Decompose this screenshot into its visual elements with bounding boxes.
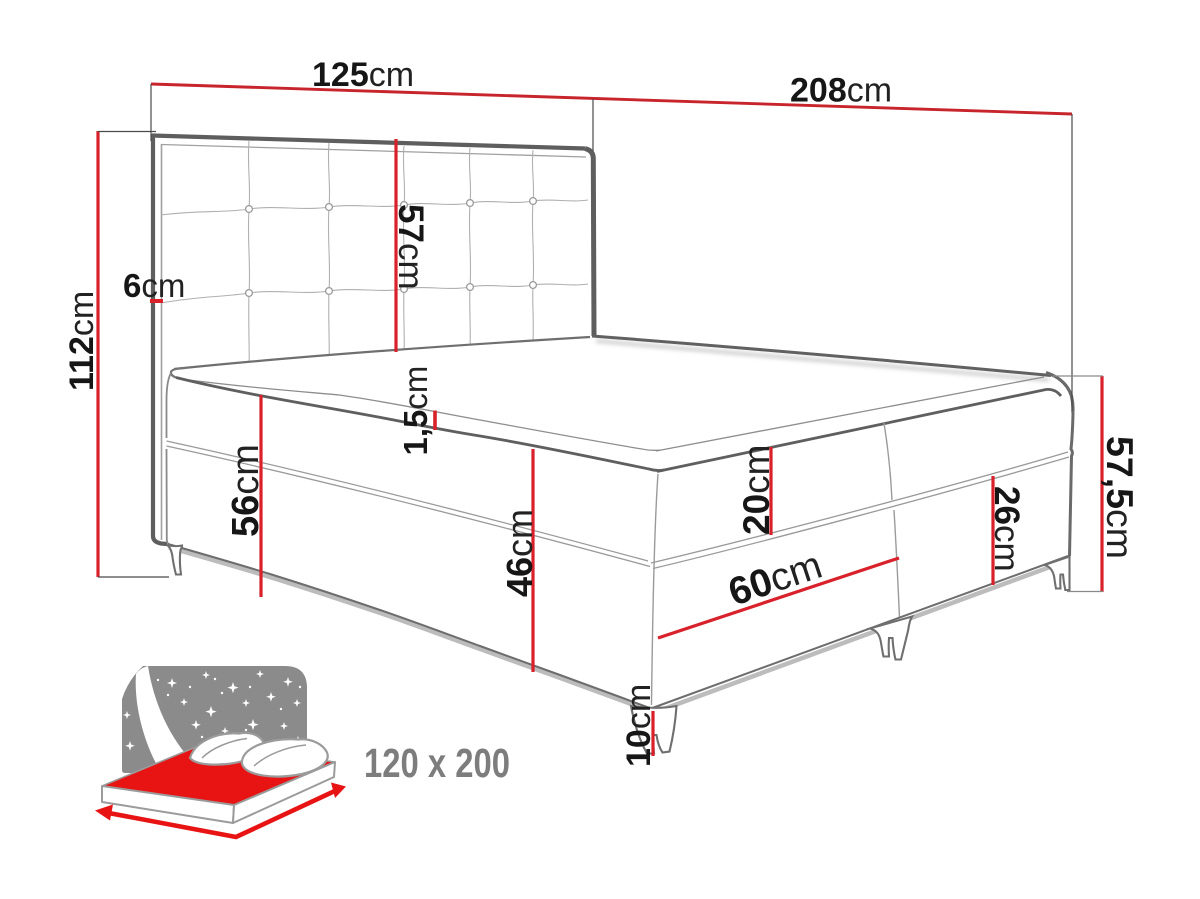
svg-text:125cm: 125cm [312, 56, 414, 94]
svg-text:10cm: 10cm [620, 684, 658, 767]
svg-text:46cm: 46cm [499, 509, 540, 597]
svg-text:57,5cm: 57,5cm [1099, 436, 1141, 559]
svg-text:20cm: 20cm [736, 445, 777, 535]
svg-text:56cm: 56cm [225, 444, 267, 537]
svg-text:1,5cm: 1,5cm [397, 366, 434, 456]
svg-text:57cm: 57cm [391, 204, 430, 290]
svg-text:26cm: 26cm [987, 486, 1026, 572]
svg-text:120 x 200: 120 x 200 [364, 740, 510, 786]
svg-text:6cm: 6cm [123, 267, 185, 304]
svg-text:208cm: 208cm [790, 72, 892, 110]
svg-text:112cm: 112cm [63, 291, 101, 391]
